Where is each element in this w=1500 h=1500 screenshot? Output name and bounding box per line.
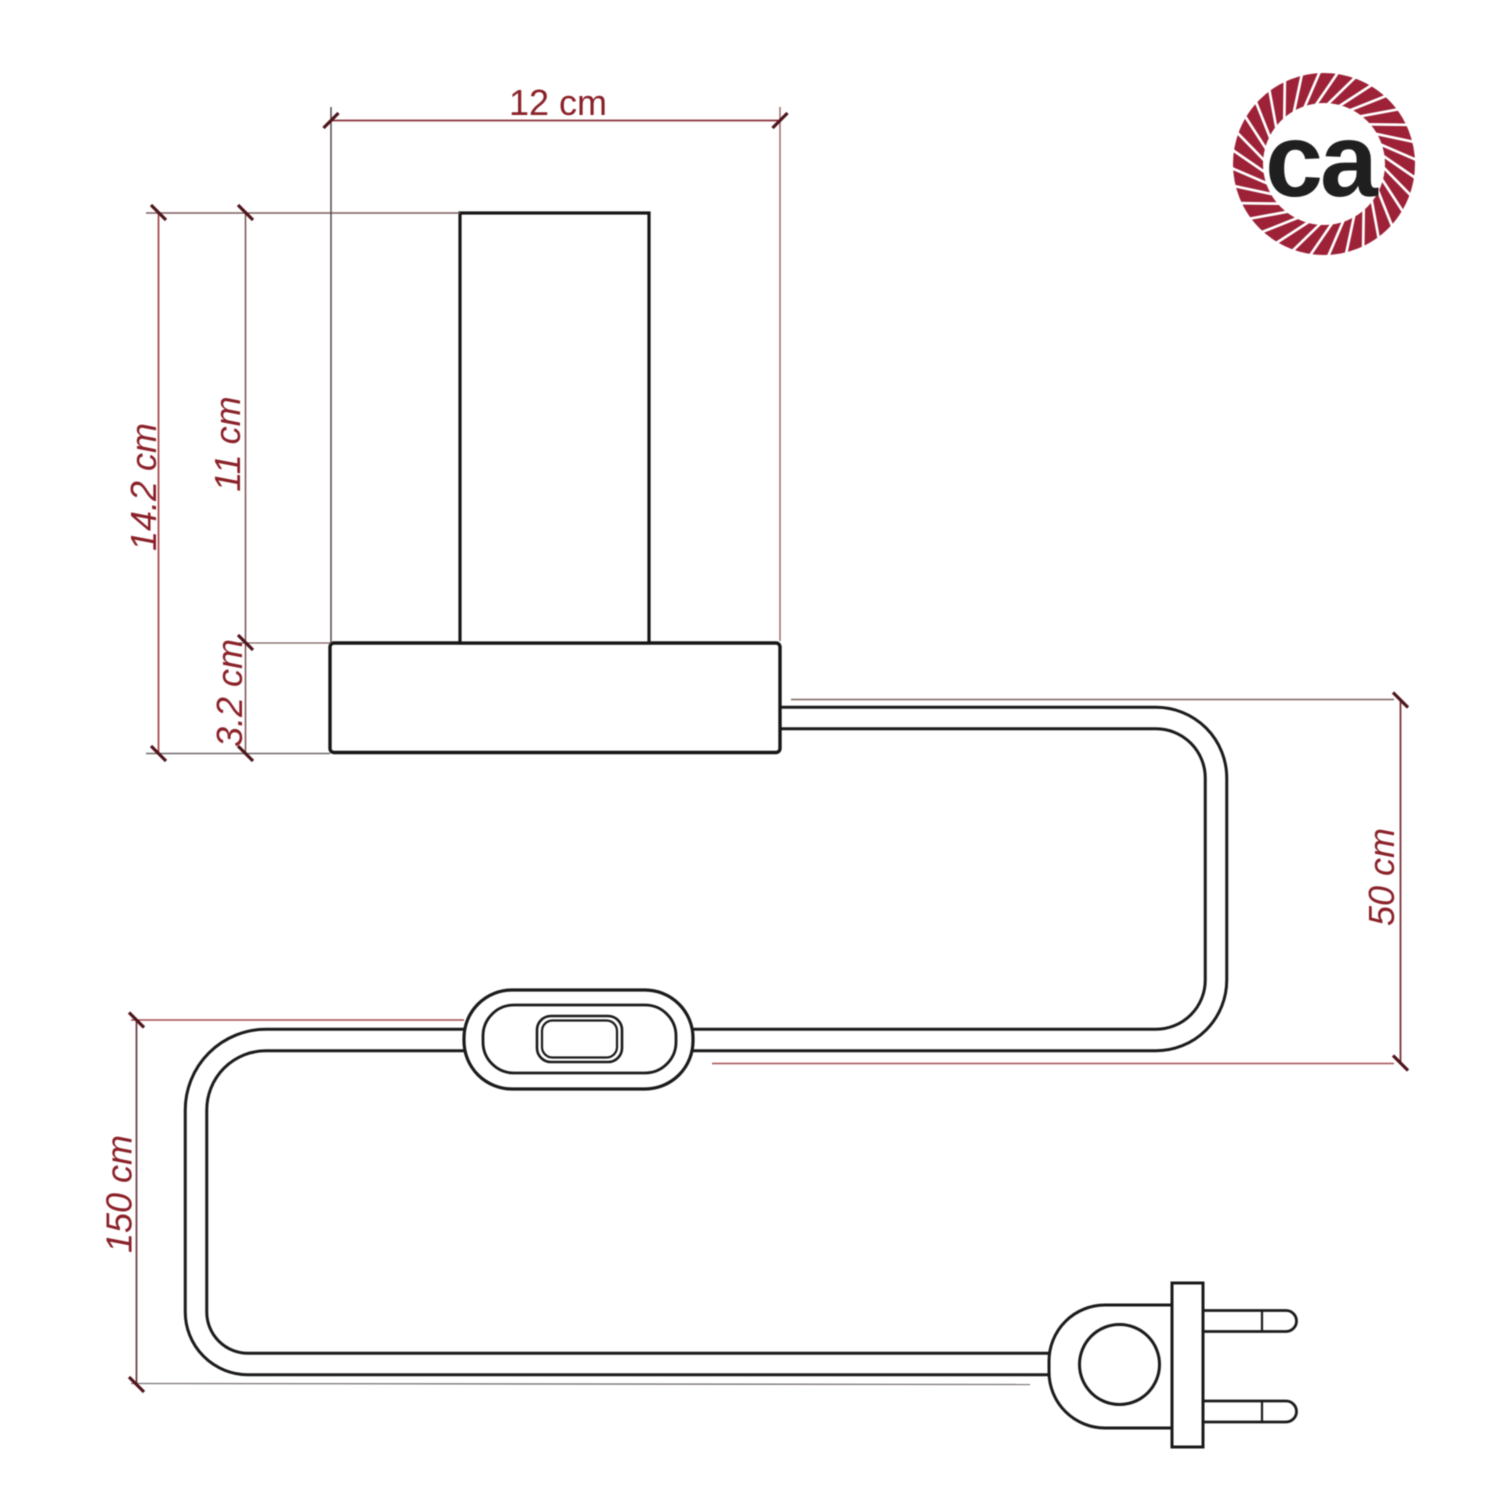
svg-text:ca: ca: [1265, 103, 1379, 219]
svg-text:11 cm: 11 cm: [207, 396, 248, 491]
svg-text:12 cm: 12 cm: [509, 82, 607, 123]
svg-text:150 cm: 150 cm: [99, 1135, 140, 1253]
svg-text:50 cm: 50 cm: [1361, 828, 1402, 926]
svg-text:3.2 cm: 3.2 cm: [209, 639, 250, 747]
svg-text:14.2 cm: 14.2 cm: [123, 423, 164, 551]
